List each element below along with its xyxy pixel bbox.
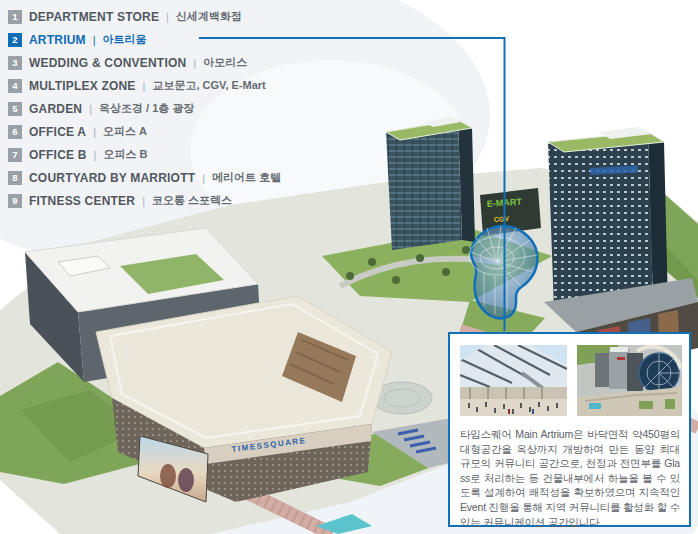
legend-item-label: OFFICE A bbox=[29, 125, 86, 139]
legend-item[interactable]: 6 OFFICE A | 오피스 A bbox=[8, 120, 281, 143]
atrium-aerial-photo bbox=[577, 345, 682, 416]
legend-item-korean: 아모리스 bbox=[203, 55, 247, 70]
legend-item-label: ARTRIUM bbox=[29, 33, 86, 47]
legend-item-label: MULTIPLEX ZONE bbox=[29, 79, 136, 93]
legend-item[interactable]: 3 WEDDING & CONVENTION | 아모리스 bbox=[8, 51, 281, 74]
legend-item-korean: 교보문고, CGV, E-Mart bbox=[152, 78, 265, 93]
legend-item-label: GARDEN bbox=[29, 102, 82, 116]
legend-item-number: 3 bbox=[8, 56, 22, 70]
legend-separator: | bbox=[166, 11, 169, 23]
legend-item[interactable]: 9 FITNESS CENTER | 코오롱 스포렉스 bbox=[8, 189, 281, 212]
legend-item-korean: 오피스 A bbox=[103, 124, 147, 139]
legend: 1 DEPARTMENT STORE | 신세계백화점 2 ARTRIUM | … bbox=[8, 5, 281, 212]
legend-item-label: DEPARTMENT STORE bbox=[29, 10, 159, 24]
legend-item-label: COURTYARD BY MARRIOTT bbox=[29, 171, 195, 185]
legend-item-korean: 옥상조경 / 1층 광장 bbox=[99, 101, 194, 116]
legend-item-label: WEDDING & CONVENTION bbox=[29, 56, 186, 70]
artrium-info-panel: 타임스퀘어 Main Artrium은 바닥면적 약450평의 대형공간을 옥상… bbox=[448, 332, 691, 527]
artrium-description: 타임스퀘어 Main Artrium은 바닥면적 약450평의 대형공간을 옥상… bbox=[460, 427, 680, 529]
legend-separator: | bbox=[142, 195, 145, 207]
legend-separator: | bbox=[94, 149, 97, 161]
legend-separator: | bbox=[93, 34, 96, 46]
legend-item[interactable]: 7 OFFICE B | 오피스 B bbox=[8, 143, 281, 166]
legend-item-korean: 코오롱 스포렉스 bbox=[152, 193, 232, 208]
artrium-map-page: E-MART CGV TIMESSQUARE bbox=[0, 0, 698, 534]
legend-item-korean: 아트리움 bbox=[103, 32, 147, 47]
legend-item-number: 8 bbox=[8, 171, 22, 185]
cgv-sign-text: CGV bbox=[494, 215, 510, 223]
atrium-interior-photo bbox=[460, 345, 567, 416]
legend-item-number: 1 bbox=[8, 10, 22, 24]
legend-item-number: 4 bbox=[8, 79, 22, 93]
legend-item[interactable]: 8 COURTYARD BY MARRIOTT | 메리어트 호텔 bbox=[8, 166, 281, 189]
legend-item-korean: 오피스 B bbox=[103, 147, 147, 162]
legend-item[interactable]: 2 ARTRIUM | 아트리움 bbox=[8, 28, 281, 51]
times-square-mall: TIMESSQUARE bbox=[96, 296, 392, 502]
legend-item-korean: 신세계백화점 bbox=[176, 9, 242, 24]
office-tower-b bbox=[548, 127, 668, 310]
legend-separator: | bbox=[193, 57, 196, 69]
legend-item-korean: 메리어트 호텔 bbox=[212, 170, 281, 185]
legend-item[interactable]: 1 DEPARTMENT STORE | 신세계백화점 bbox=[8, 5, 281, 28]
legend-item[interactable]: 5 GARDEN | 옥상조경 / 1층 광장 bbox=[8, 97, 281, 120]
legend-item-label: OFFICE B bbox=[29, 148, 87, 162]
legend-item-number: 9 bbox=[8, 194, 22, 208]
info-photos bbox=[450, 334, 689, 416]
legend-item-label: FITNESS CENTER bbox=[29, 194, 135, 208]
legend-item-number: 5 bbox=[8, 102, 22, 116]
legend-separator: | bbox=[89, 103, 92, 115]
legend-item-number: 2 bbox=[8, 33, 22, 47]
legend-separator: | bbox=[93, 126, 96, 138]
legend-separator: | bbox=[202, 172, 205, 184]
legend-separator: | bbox=[143, 80, 146, 92]
legend-item[interactable]: 4 MULTIPLEX ZONE | 교보문고, CGV, E-Mart bbox=[8, 74, 281, 97]
office-tower-a bbox=[386, 117, 475, 250]
legend-item-number: 7 bbox=[8, 148, 22, 162]
legend-item-number: 6 bbox=[8, 125, 22, 139]
